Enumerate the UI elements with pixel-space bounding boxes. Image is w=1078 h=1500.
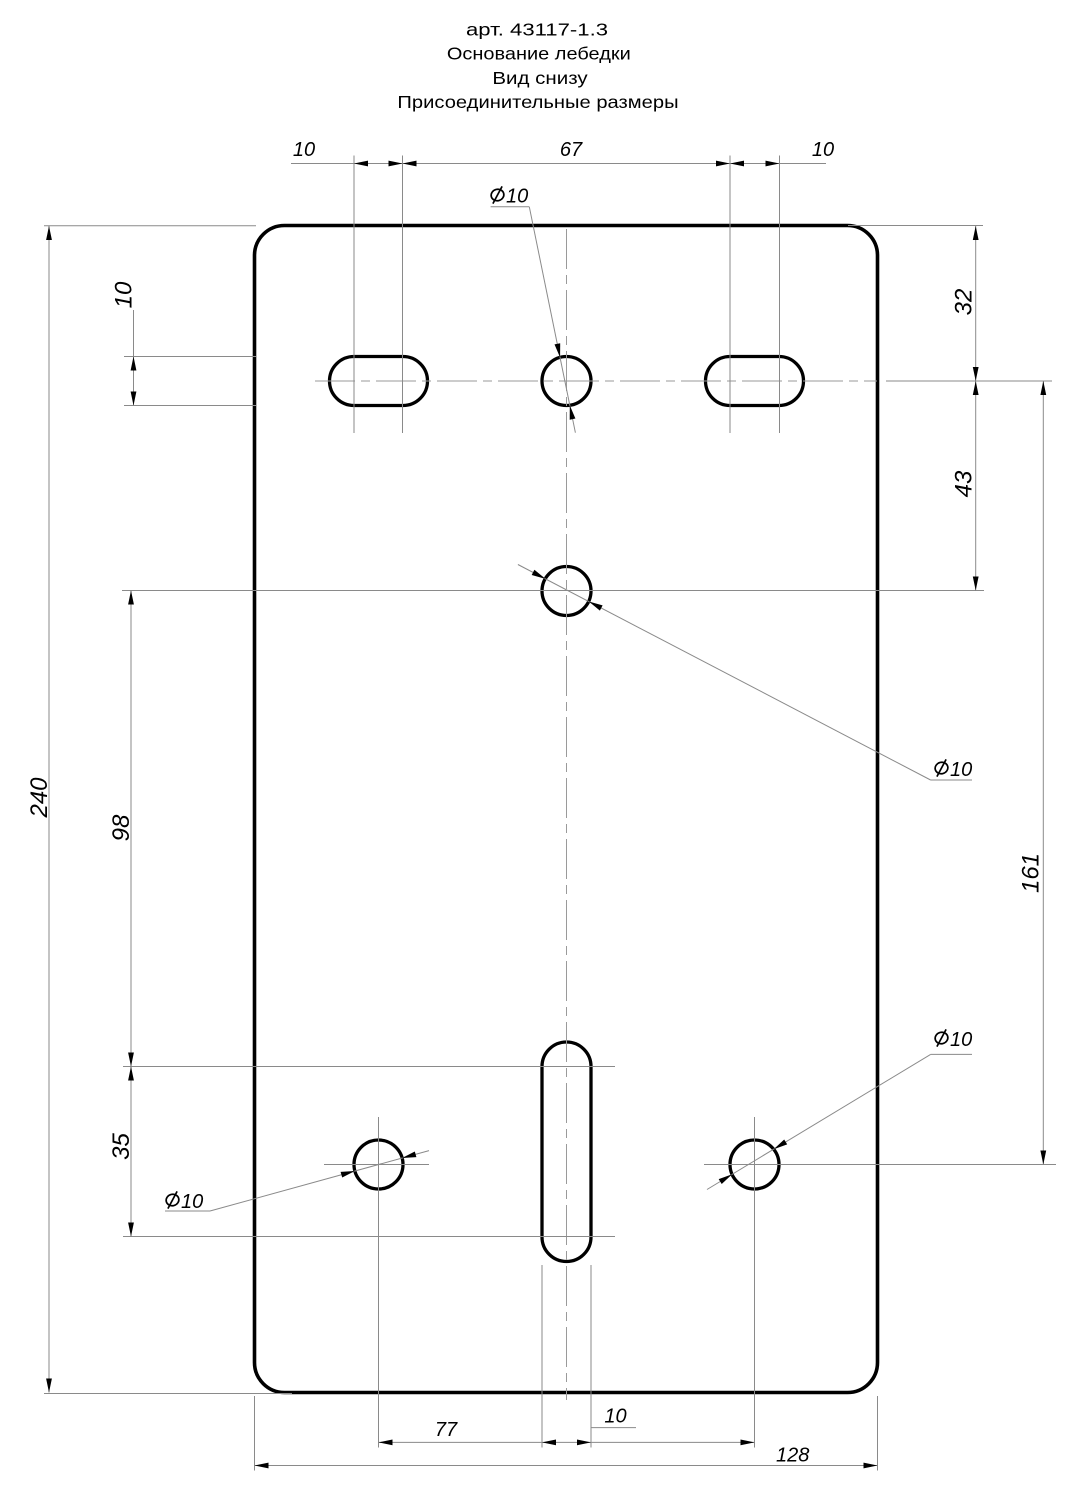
svg-text:10: 10 xyxy=(181,1191,203,1213)
svg-text:32: 32 xyxy=(951,289,978,316)
svg-text:43: 43 xyxy=(951,470,978,497)
svg-text:10: 10 xyxy=(604,1406,626,1428)
svg-text:10: 10 xyxy=(812,139,834,161)
svg-text:Основание лебедки: Основание лебедки xyxy=(447,44,631,64)
svg-text:98: 98 xyxy=(108,814,135,841)
svg-text:161: 161 xyxy=(1018,853,1045,893)
svg-text:35: 35 xyxy=(108,1133,135,1160)
svg-text:арт. 43117-1.3: арт. 43117-1.3 xyxy=(466,20,608,40)
svg-text:10: 10 xyxy=(950,1029,972,1051)
svg-text:240: 240 xyxy=(26,777,53,819)
svg-text:128: 128 xyxy=(776,1445,809,1467)
svg-text:77: 77 xyxy=(435,1419,458,1441)
svg-text:10: 10 xyxy=(293,139,315,161)
svg-text:Вид снизу: Вид снизу xyxy=(492,69,588,89)
svg-text:10: 10 xyxy=(111,281,138,308)
svg-text:10: 10 xyxy=(506,186,528,208)
svg-text:67: 67 xyxy=(560,139,583,161)
svg-text:10: 10 xyxy=(950,759,972,781)
svg-text:Присоединительные размеры: Присоединительные размеры xyxy=(397,93,678,113)
